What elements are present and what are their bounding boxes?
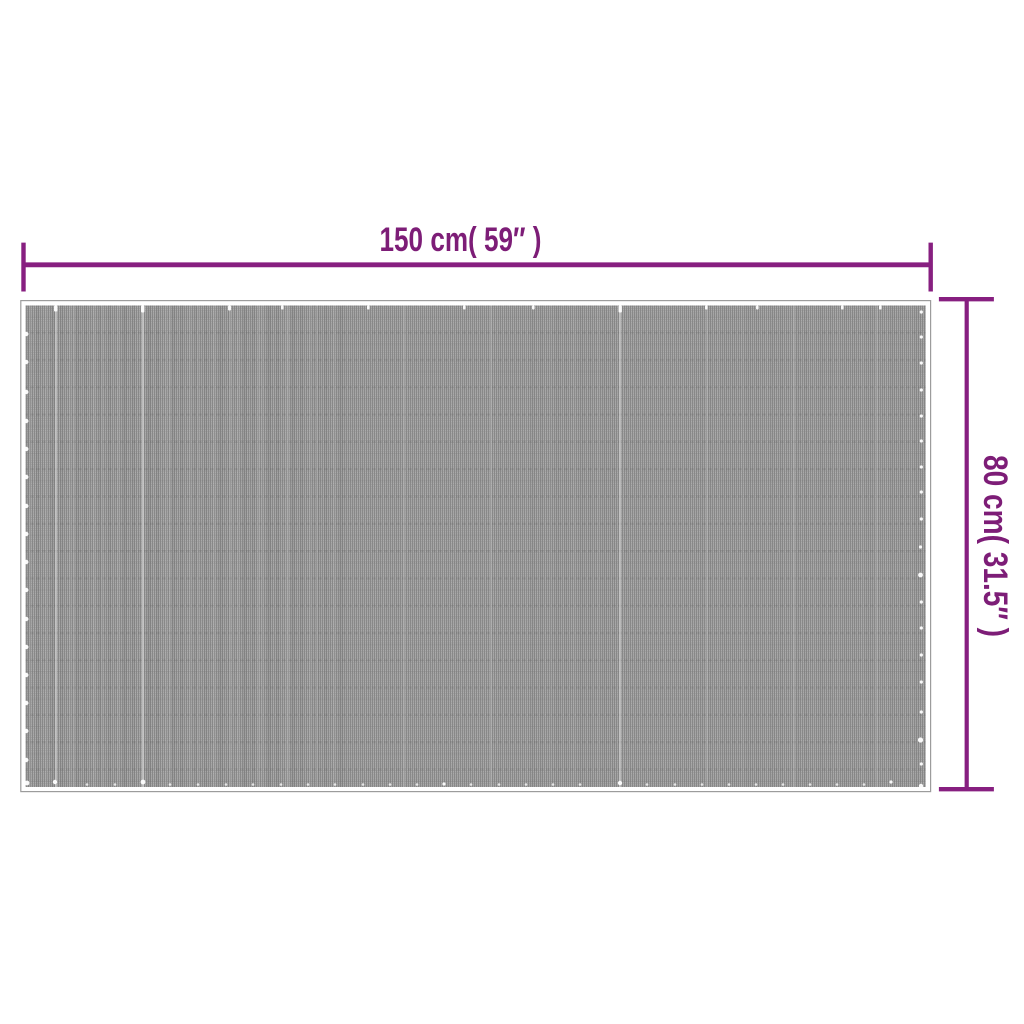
svg-text:150 cm( 59″ ): 150 cm( 59″ ) bbox=[380, 221, 542, 259]
svg-text:80 cm( 31.5″ ): 80 cm( 31.5″ ) bbox=[976, 455, 1014, 637]
